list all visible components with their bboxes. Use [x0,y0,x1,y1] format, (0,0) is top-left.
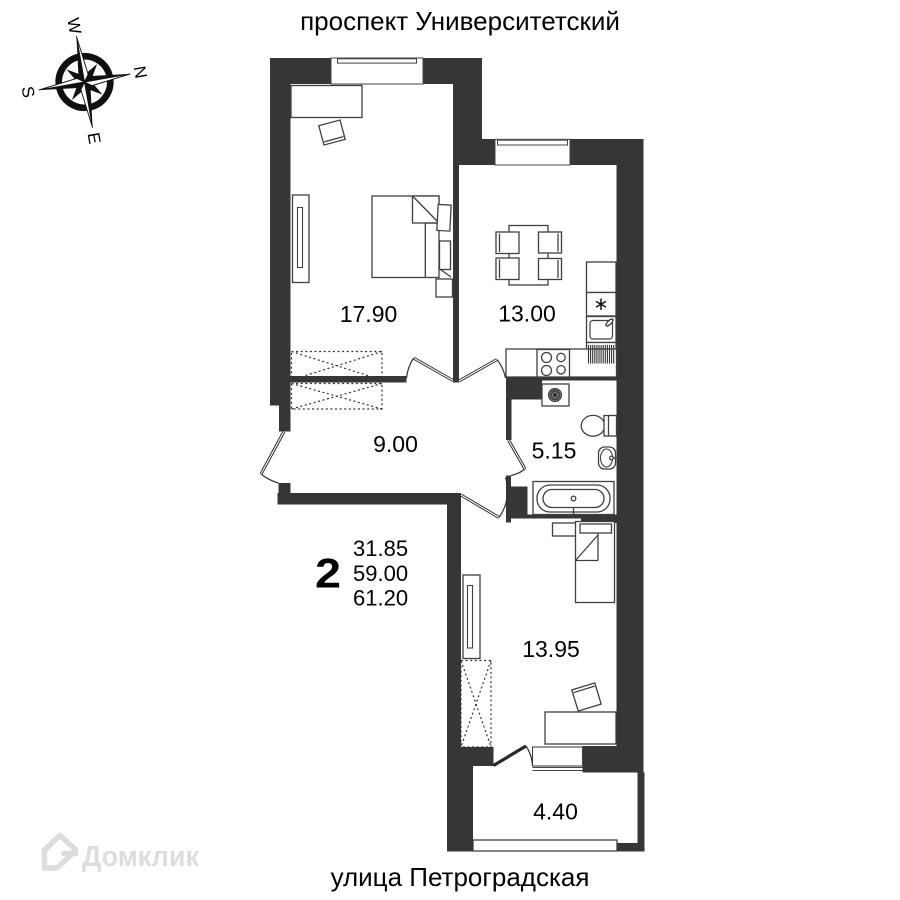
svg-text:13.95: 13.95 [522,636,580,662]
svg-text:4.40: 4.40 [533,799,578,825]
svg-text:улица Петроградская: улица Петроградская [331,862,590,892]
svg-text:E: E [84,131,105,145]
svg-text:13.00: 13.00 [498,301,556,327]
svg-text:2: 2 [315,550,341,597]
svg-text:N: N [130,64,151,79]
svg-text:S: S [18,85,39,99]
svg-text:проспект Университетский: проспект Университетский [300,6,620,36]
svg-text:Домклик: Домклик [82,841,199,873]
svg-text:17.90: 17.90 [340,301,398,327]
svg-text:5.15: 5.15 [532,438,577,464]
svg-text:W: W [63,16,84,35]
svg-text:9.00: 9.00 [373,431,418,457]
svg-text:31.85: 31.85 [353,536,408,561]
svg-text:59.00: 59.00 [353,561,408,586]
svg-text:61.20: 61.20 [353,586,408,611]
